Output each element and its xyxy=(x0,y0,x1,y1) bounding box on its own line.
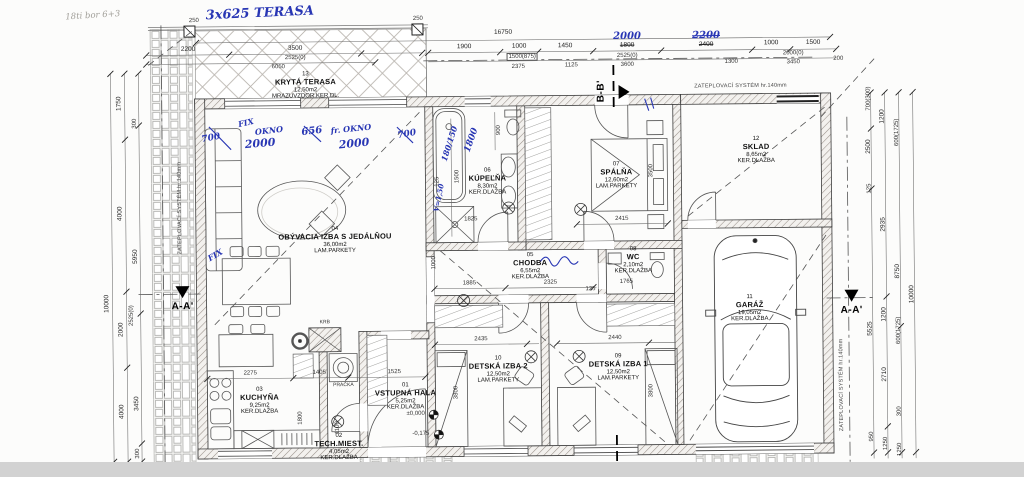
room-name: CHODBA xyxy=(512,259,549,268)
dim-top: 2525(0) xyxy=(617,53,638,59)
dim-right: 950 xyxy=(869,432,875,442)
dim-left: 4000 xyxy=(117,206,124,221)
dim-top: 3500 xyxy=(288,46,303,53)
dim-top: 1125 xyxy=(565,62,578,68)
room-label-sklad: 12 SKLAD 8,65m2 KER.DLAŽBA xyxy=(737,136,775,166)
plan-linework xyxy=(0,0,1024,477)
dim-right: 600(1725) xyxy=(894,119,900,146)
dim-top: 200 xyxy=(833,56,843,62)
dim-inner: 1525 xyxy=(388,369,401,375)
scan-edge-bar xyxy=(0,462,1024,477)
dim-inner: 900 xyxy=(496,125,502,135)
dim-top: 1450 xyxy=(558,43,573,50)
room-name: VSTUPNÁ HALA xyxy=(375,389,436,398)
dim-right: 2935 xyxy=(881,217,888,232)
dim-left: 1750 xyxy=(116,96,123,111)
plan-drawing: 13 KRYTÁ TERASA 12,50m2 MRAZUVZDOR.KER.D… xyxy=(0,0,1024,477)
level-mark-minus: -0,175 xyxy=(412,431,429,437)
dim-right: 2500 xyxy=(866,139,873,154)
krb-label: KRB xyxy=(320,320,330,325)
insulation-note-right: ZATEPLOVACÍ SYSTÉM hr.140mm xyxy=(839,339,845,432)
room-floor: LAM.PARKETY xyxy=(589,375,648,382)
dim-inner: 2415 xyxy=(615,216,628,222)
room-label-kuchyna: 03 KUCHYŇA 9,25m2 KER.DLAŽBA xyxy=(240,387,279,417)
room-floor: MRAZUVZDOR.KER.DL. xyxy=(272,93,339,101)
room-label-spalna: 07 SPÁLŇA 12,60m2 LAM.PARKETY xyxy=(595,161,637,191)
dim-left: 300 xyxy=(132,119,138,129)
dim-inner: 2440 xyxy=(608,335,621,341)
dim-right: 1250 xyxy=(883,437,889,450)
dim-right: 300 xyxy=(897,406,903,416)
dim-inner: 1765 xyxy=(620,279,633,285)
room-label-tech: 02 TECH.MIEST. 4,05m2 KER.DLAŽBA xyxy=(314,433,363,463)
section-marker-aa-left: A-A' xyxy=(172,302,194,312)
dim-top: 1900 xyxy=(457,44,472,51)
dim-inner: 3500 xyxy=(648,164,654,177)
insulation-note-left: ZATEPLOVACÍ SYSTÉM hr.140mm xyxy=(177,162,183,255)
dim-top: 2375 xyxy=(512,64,525,70)
room-name: GARÁŽ xyxy=(731,301,768,310)
dim-inner: 2435 xyxy=(474,336,487,342)
dim-right: 125 xyxy=(866,184,872,194)
dim-top: 1000 xyxy=(764,40,779,47)
dim-top-crossed: 2400 xyxy=(699,42,714,49)
dim-top: 1000 xyxy=(512,44,527,51)
room-floor: KER.DLAŽBA xyxy=(512,274,549,281)
section-marker-bb: B-B' xyxy=(596,80,606,102)
room-name: DETSKÁ IZBA 2 xyxy=(469,362,528,371)
room-label-garaz: 11 GARÁŽ 19,05m2 KER.DLAŽBA xyxy=(731,294,769,324)
dim-left-overall: 10000 xyxy=(104,295,111,313)
room-floor: KER.DLAŽBA xyxy=(731,316,768,323)
room-floor: KER.DLAŽBA xyxy=(615,268,652,275)
room-name: DETSKÁ IZBA 1 xyxy=(589,360,648,369)
dim-left: 4000 xyxy=(119,404,126,419)
dim-left: 3450 xyxy=(134,396,141,411)
room-label-detska2: 10 DETSKÁ IZBA 2 12,50m2 LAM.PARKETY xyxy=(469,355,528,385)
dim-top: 1500(875) xyxy=(507,53,538,61)
room-floor: KER.DLAŽBA xyxy=(375,404,436,411)
room-floor: KER.DLAŽBA xyxy=(240,409,279,416)
dim-left: 2525(0) xyxy=(129,305,135,326)
room-label-chodba: 05 CHODBA 6,55m2 KER.DLAŽBA xyxy=(511,252,549,282)
dim-top: 2200 xyxy=(181,47,196,54)
blue-correction-2000: 2000 xyxy=(613,32,641,42)
dim-inner: 1800 xyxy=(298,411,304,424)
dim-inner: 1405 xyxy=(313,370,326,376)
room-floor: KER.DLAŽBA xyxy=(738,158,775,165)
section-marker-aa-right: A-A' xyxy=(841,306,863,316)
dim-left: 5950 xyxy=(133,249,140,264)
dim-inner: 1500 xyxy=(454,170,460,183)
dim-right: 8750 xyxy=(895,264,902,279)
room-label-wc: 08 WC 2,10m2 KER.DLAŽBA xyxy=(614,246,652,276)
blue-correction-2200: 2200 xyxy=(692,31,720,41)
room-floor: LAM.PARKETY xyxy=(469,378,528,385)
dim-inner: 3800 xyxy=(453,386,459,399)
room-floor: LAM.PARKETY xyxy=(596,184,638,191)
room-name: SPÁLŇA xyxy=(596,168,638,177)
room-name: KÚPEĽŇA xyxy=(469,174,507,183)
dim-top-overall: 16750 xyxy=(494,30,512,37)
room-name: OBÝVACIA IZBA S JEDÁLŇOU xyxy=(278,232,391,242)
dim-top: 3600 xyxy=(621,62,634,68)
room-floor: KER.DLAŽBA xyxy=(469,190,507,197)
dim-left: 300 xyxy=(135,449,141,459)
blue-note-2000-window1: 2000 xyxy=(244,137,275,150)
room-name: SKLAD xyxy=(737,143,774,152)
dim-right: 1250 xyxy=(897,443,903,456)
dim-right: 700(300) xyxy=(866,87,872,111)
dim-right: 2710 xyxy=(882,367,889,382)
dim-inner: 1000 xyxy=(431,256,437,269)
room-name: TECH.MIEST. xyxy=(314,440,363,449)
room-label-terasa: 13 KRYTÁ TERASA 12,50m2 MRAZUVZDOR.KER.D… xyxy=(272,71,340,101)
dim-inner: 1885 xyxy=(463,280,476,286)
dim-inner: 1825 xyxy=(464,216,477,222)
room-label-vstupna-hala: 01 VSTUPNÁ HALA 5,25m2 KER.DLAŽBA xyxy=(375,382,436,412)
room-label-kupelna: 06 KÚPEĽŇA 8,30m2 KER.DLAŽBA xyxy=(468,167,506,197)
level-mark-zero: ±0,000 xyxy=(406,411,424,417)
floorplan-scan: 13 KRYTÁ TERASA 12,50m2 MRAZUVZDOR.KER.D… xyxy=(0,0,1024,477)
dim-right: 600(1725) xyxy=(896,317,902,344)
dim-right: 1200 xyxy=(881,307,888,322)
dim-top: 1300 xyxy=(725,59,738,65)
dim-right: 5525 xyxy=(868,321,875,336)
dim-top: 2525(0) xyxy=(285,55,306,61)
dim-top: 250 xyxy=(189,18,199,24)
dim-top: 250 xyxy=(413,16,423,22)
dim-inner: 3800 xyxy=(648,384,654,397)
dim-right: 1200 xyxy=(880,109,887,124)
dim-top-crossed: 1800 xyxy=(620,43,635,50)
pracka-label: PRAČKA xyxy=(333,383,354,388)
room-name: KRYTÁ TERASA xyxy=(272,78,339,87)
dim-top: 3450 xyxy=(787,59,800,65)
dim-top: 6050 xyxy=(272,64,285,70)
dim-right-overall: 10000 xyxy=(909,285,916,303)
dim-top: 1500 xyxy=(806,40,821,47)
dim-inner: 125 xyxy=(585,286,595,292)
blue-note-2000-window2: 2000 xyxy=(338,137,370,151)
dim-left: 2000 xyxy=(119,322,126,337)
dim-inner: 2275 xyxy=(244,370,257,376)
room-name: WC xyxy=(614,253,651,262)
room-floor: LAM.PARKETY xyxy=(278,248,391,256)
room-label-obyvacia: 04 OBÝVACIA IZBA S JEDÁLŇOU 36,00m2 LAM.… xyxy=(278,226,392,256)
insulation-note-top: ZATEPLOVACÍ SYSTÉM hr.140mm xyxy=(694,84,787,90)
room-name: KUCHYŇA xyxy=(240,393,279,402)
dim-top: 2000(0) xyxy=(783,50,804,56)
room-label-detska1: 09 DETSKÁ IZBA 1 12,50m2 LAM.PARKETY xyxy=(589,353,648,383)
